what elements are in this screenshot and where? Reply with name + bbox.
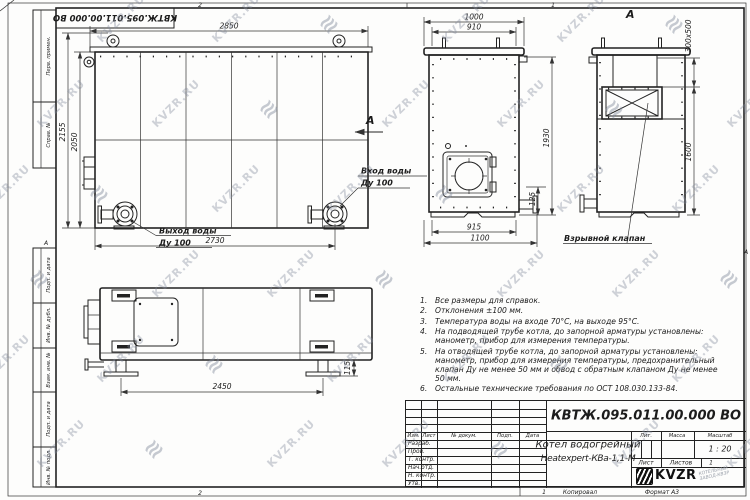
note-number: 2. xyxy=(420,307,435,316)
tb-designation: КВТЖ.095.011.00.000 ВО xyxy=(551,409,741,424)
zone-bottom-left: 2 xyxy=(198,490,202,497)
strip-label: Перв. примен. xyxy=(46,37,52,76)
tb-sheets-value: 1 xyxy=(709,459,713,466)
tb-row-utv: Утв. xyxy=(408,481,420,487)
view-a-label: A xyxy=(625,8,635,21)
drawing-sheet: 2 1 2 1 А А Копировал Формат А3 КВТЖ.095… xyxy=(0,0,750,500)
tb-name-line2: Heatexpert-КВа-1,1-М xyxy=(541,454,636,464)
tb-mass-label: Масса xyxy=(669,433,686,439)
tb-col-doc: № докум. xyxy=(451,433,477,439)
tb-scale-label: Масштаб xyxy=(708,433,733,439)
stamp-designation: КВТЖ.095.011.00.000 ВО xyxy=(53,12,177,22)
strip-label: Взам. инв. № xyxy=(46,352,52,387)
note-text: Отклонения ±100 мм. xyxy=(435,307,720,316)
tb-row-razrab: Разраб. xyxy=(408,441,431,447)
tb-scale-value: 1 : 20 xyxy=(708,445,731,454)
dim-910: 910 xyxy=(467,23,482,32)
note-item: 6.Остальные технические требования по ОС… xyxy=(420,385,720,394)
note-text: На подводящей трубе котла, до запорной а… xyxy=(435,328,720,346)
inlet-label: Вход воды xyxy=(361,167,412,176)
zone-top-left: 2 xyxy=(198,2,202,9)
strip-label: Подп. и дата xyxy=(46,257,52,292)
tb-row-prov: Пров. xyxy=(408,449,425,455)
note-text: Остальные технические требования по ОСТ … xyxy=(435,385,720,394)
zone-right-marker: А xyxy=(743,249,748,256)
dim-flue: 300x500 xyxy=(684,19,693,52)
dim-height-outer: 2155 xyxy=(58,122,67,141)
dim-915: 915 xyxy=(467,223,482,232)
tb-lit-label: Лит. xyxy=(640,433,652,439)
outlet-dn-label: Ду 100 xyxy=(158,239,191,248)
flue-outlet xyxy=(613,55,657,87)
zone-bottom-right: 1 xyxy=(542,489,546,496)
view-arrow-label: A xyxy=(365,114,375,127)
note-text: Температура воды на входе 70°С, на выход… xyxy=(435,318,720,327)
inlet-dn-label: Ду 100 xyxy=(360,179,393,188)
zone-left-marker: А xyxy=(43,240,48,247)
dim-width-top: 2850 xyxy=(219,22,238,31)
dim-width-bottom: 2730 xyxy=(205,236,224,245)
front-connector xyxy=(84,300,100,344)
strip-label: Инв. № подл. xyxy=(46,449,52,485)
note-text: Все размеры для справок. xyxy=(435,297,720,306)
corner-lugs xyxy=(112,290,334,352)
title-block: Изм. Лист № докум. Подп. Дата Разраб. Пр… xyxy=(405,400,745,487)
note-number: 4. xyxy=(420,328,435,346)
kvzr-logo-icon xyxy=(636,468,653,485)
note-number: 3. xyxy=(420,318,435,327)
tb-col-izm: Изм. xyxy=(407,433,419,439)
tb-row-tkontr: Т. контр. xyxy=(408,457,435,463)
dim-125: 125 xyxy=(528,192,537,207)
outlet-label: Выход воды xyxy=(159,227,217,236)
explosion-valve-callout: Взрывной клапан xyxy=(564,234,646,243)
footer-format: Формат А3 xyxy=(645,489,679,496)
dim-1600: 1600 xyxy=(684,142,693,161)
tb-row-nkontr: Н. контр. xyxy=(408,473,436,479)
burner-door xyxy=(443,152,496,197)
tb-sheet-label: Лист xyxy=(638,459,653,466)
dim-1100: 1100 xyxy=(470,234,489,243)
zone-top-right: 1 xyxy=(551,2,555,9)
footer-copied: Копировал xyxy=(563,489,597,496)
lifting-lugs xyxy=(84,35,345,67)
note-item: 2.Отклонения ±100 мм. xyxy=(420,307,720,316)
explosion-valve xyxy=(602,87,662,119)
dim-height-inner: 2050 xyxy=(70,132,79,151)
tb-sheets-label: Листов xyxy=(670,459,692,466)
note-item: 4.На подводящей трубе котла, до запорной… xyxy=(420,328,720,346)
note-item: 5.На отводящей трубе котла, до запорной … xyxy=(420,348,720,384)
note-number: 1. xyxy=(420,297,435,306)
tb-col-data: Дата xyxy=(526,433,539,439)
note-text: На отводящей трубе котла, до запорной ар… xyxy=(435,348,720,384)
technical-notes: 1.Все размеры для справок. 2.Отклонения … xyxy=(420,297,720,396)
kvzr-org-name: КОТЕЛЬНЫЙ ЗАВОД-КВЗР xyxy=(698,466,730,483)
dim-1000: 1000 xyxy=(464,13,483,22)
side-strips: Перв. примен. Справ. № Подп. и дата Инв.… xyxy=(33,10,56,487)
view-a: A 300x500 1600 Взрывной клапан xyxy=(563,8,700,244)
tb-row-nachotd: Нач.отд. xyxy=(408,465,434,471)
left-connector xyxy=(82,157,95,189)
note-item: 3.Температура воды на входе 70°С, на вых… xyxy=(420,318,720,327)
support-legs xyxy=(85,359,340,376)
note-number: 5. xyxy=(420,348,435,384)
strip-label: Подп. и дата xyxy=(46,401,52,436)
view-side: 1000 910 915 1100 1930 125 xyxy=(424,13,556,248)
dim-1930: 1930 xyxy=(542,128,551,147)
dim-115: 115 xyxy=(343,361,352,376)
dim-2450: 2450 xyxy=(212,382,231,391)
view-front: 2850 2155 2050 2730 Выход воды Ду 100 Вх… xyxy=(58,22,427,251)
tb-col-list: Лист xyxy=(422,433,435,439)
strip-label: Справ. № xyxy=(46,122,52,147)
view-bottom: 2450 115 xyxy=(84,288,372,396)
tb-col-podp: Подп. xyxy=(497,433,513,439)
note-item: 1.Все размеры для справок. xyxy=(420,297,720,306)
water-inlet-flange xyxy=(308,202,347,229)
top-hatch xyxy=(134,298,178,346)
strip-label: Инв. № дубл. xyxy=(46,307,52,343)
water-outlet-flange xyxy=(98,202,137,229)
note-number: 6. xyxy=(420,385,435,394)
kvzr-logo-text: KVZR xyxy=(655,468,697,483)
tb-name-line1: Котел водогрейный xyxy=(536,440,641,451)
